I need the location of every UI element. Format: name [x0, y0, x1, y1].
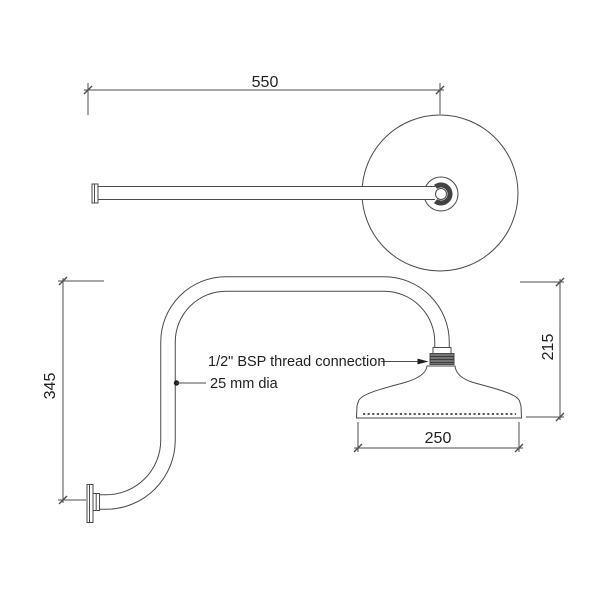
thread-collar	[433, 348, 451, 354]
annotation-pipe-diameter-text: 25 mm dia	[210, 376, 279, 392]
dimension-arm-length-value: 550	[252, 74, 279, 91]
shower-arm-technical-drawing: 550 345 215	[0, 0, 600, 600]
dimension-wall-height-value: 345	[42, 373, 59, 400]
dimension-arm-length: 550	[84, 74, 444, 115]
arm-tube-plan-fill	[98, 186, 435, 200]
annotation-pipe-diameter: 25 mm dia	[174, 376, 279, 392]
shower-head-side-profile	[357, 366, 522, 418]
plan-view	[92, 115, 518, 271]
dimension-head-diameter-value: 250	[425, 430, 452, 447]
dimension-head-drop: 215	[520, 278, 564, 421]
technical-drawing-canvas: 550 345 215	[0, 0, 600, 600]
dimension-head-diameter: 250	[354, 422, 523, 452]
annotation-thread-connection-text: 1/2" BSP thread connection	[208, 354, 385, 370]
leader-arrowhead	[418, 359, 429, 365]
annotation-thread-connection: 1/2" BSP thread connection	[208, 354, 429, 370]
dimension-head-drop-value: 215	[540, 334, 557, 361]
dimension-wall-height: 345	[42, 277, 104, 504]
side-view	[87, 284, 522, 523]
